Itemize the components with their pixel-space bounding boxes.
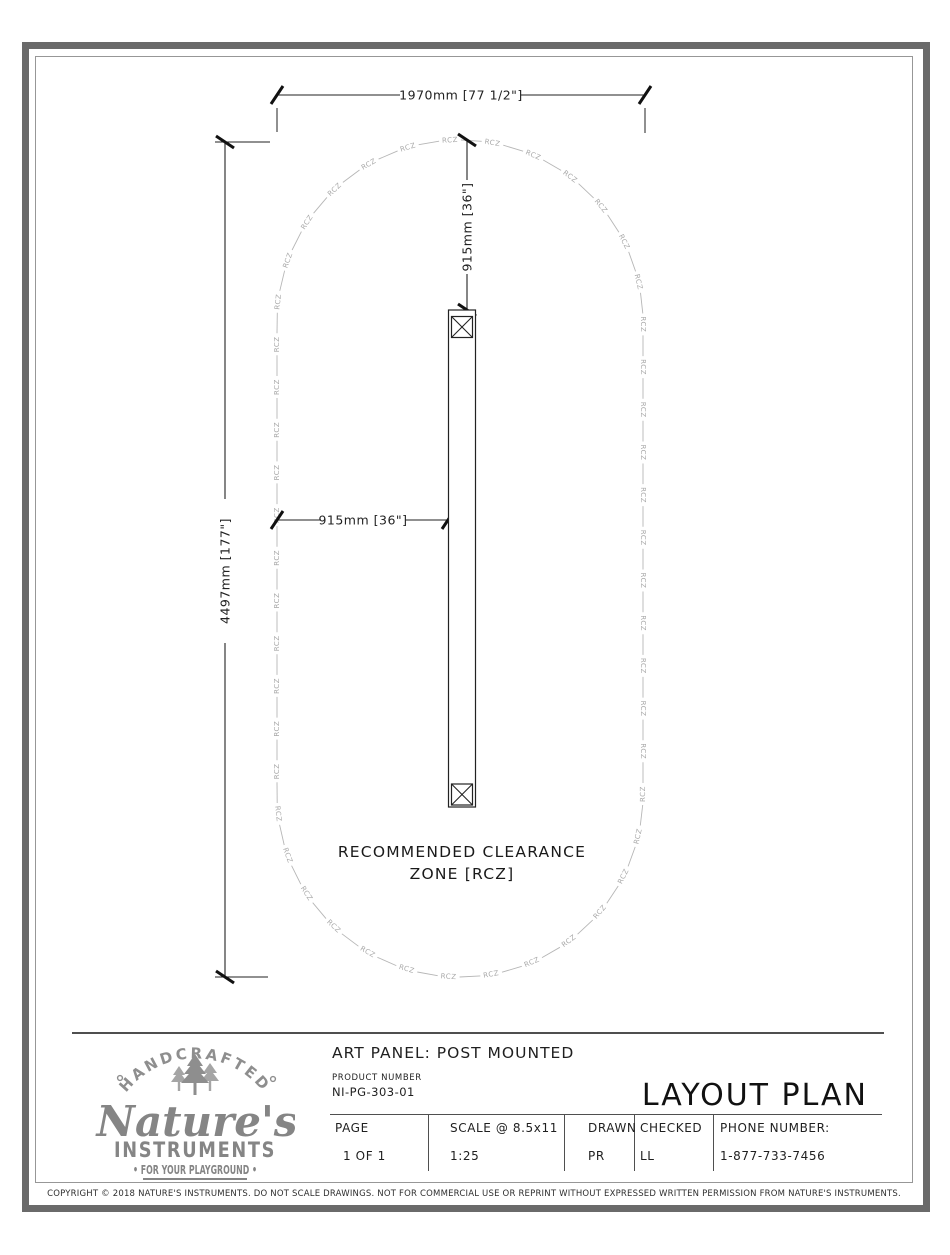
rcz-path-label: RCZ	[592, 903, 608, 920]
rcz-path-label: RCZ	[560, 933, 578, 949]
rcz-dash-segment	[292, 866, 301, 885]
rcz-dash-segment	[579, 184, 594, 198]
natures-instruments-logo: HANDCRAFTED Nature's INSTRUMENTS • FOR Y…	[95, 1040, 295, 1188]
table-value-checked: LL	[640, 1149, 655, 1163]
dimension-overall-height: 4497mm [177"]	[215, 136, 270, 983]
rcz-path-label: RCZ	[639, 743, 647, 759]
rcz-dash-segment	[379, 151, 398, 159]
rcz-path-label: RCZ	[281, 251, 294, 269]
table-divider	[428, 1115, 429, 1171]
clearance-note: RECOMMENDED CLEARANCE ZONE [RCZ]	[338, 843, 586, 883]
rcz-dash-segment	[629, 252, 636, 272]
rcz-path-label: RCZ	[273, 593, 281, 609]
rcz-path-label: RCZ	[484, 138, 501, 149]
rcz-path-label: RCZ	[273, 293, 283, 310]
dimension-overall-width: 1970mm [77 1/2"]	[271, 86, 651, 133]
table-divider	[713, 1115, 714, 1171]
rcz-path-label: RCZ	[273, 806, 283, 823]
rcz-dash-segment	[419, 141, 439, 145]
rcz-dash-segment	[280, 271, 285, 291]
rcz-path-label: RCZ	[299, 885, 314, 903]
table-top-rule	[330, 1114, 882, 1115]
post-bottom	[452, 784, 473, 805]
dimension-clearance-top: 915mm [36"]	[458, 134, 476, 316]
table-value-scale: 1:25	[450, 1149, 479, 1163]
rcz-path-label: RCZ	[442, 136, 458, 145]
rcz-dash-segment	[641, 293, 643, 314]
table-header-phone: PHONE NUMBER:	[720, 1121, 830, 1135]
rcz-path-label: RCZ	[273, 763, 281, 779]
product-number: NI-PG-303-01	[332, 1085, 415, 1099]
dim-label-overall-height: 4497mm [177"]	[218, 518, 233, 624]
title-block-top-rule	[72, 1032, 884, 1034]
dimension-clearance-side: 915mm [36"]	[271, 511, 454, 529]
copyright-notice: COPYRIGHT © 2018 NATURE'S INSTRUMENTS. D…	[35, 1189, 913, 1199]
rcz-dash-segment	[313, 903, 326, 919]
rcz-dash-segment	[578, 920, 593, 934]
logo-brand-caps: INSTRUMENTS	[114, 1138, 276, 1163]
rcz-dash-segment	[640, 805, 642, 826]
rcz-dash-segment	[543, 160, 561, 170]
rcz-path-label: RCZ	[633, 273, 644, 290]
rcz-dash-segment	[377, 957, 396, 965]
dim-label-clearance-side: 915mm [36"]	[318, 513, 407, 528]
rcz-dash-segment	[502, 966, 522, 972]
rcz-path-label: RCZ	[273, 464, 281, 480]
rcz-dash-segment	[628, 847, 635, 867]
rcz-dash-segment	[342, 934, 359, 946]
rcz-path-label: RCZ	[632, 828, 643, 845]
clearance-note-line2: ZONE [RCZ]	[410, 865, 515, 883]
rcz-path-label: RCZ	[273, 336, 281, 352]
rcz-path-label: RCZ	[325, 918, 342, 935]
rcz-path-label: RCZ	[639, 701, 647, 717]
rcz-dash-segment	[417, 972, 437, 976]
table-header-drawn: DRAWN	[588, 1121, 637, 1135]
rcz-path-label: RCZ	[639, 445, 647, 461]
rcz-path-label: RCZ	[639, 573, 647, 589]
rcz-path-label: RCZ	[281, 847, 294, 865]
dim-label-clearance-top: 915mm [36"]	[460, 182, 475, 271]
table-value-phone: 1-877-733-7456	[720, 1149, 825, 1163]
rcz-path-label: RCZ	[359, 945, 377, 960]
drawing-title: ART PANEL: POST MOUNTED	[332, 1044, 574, 1062]
rcz-dash-segment	[292, 232, 301, 250]
rcz-dash-segment	[607, 886, 618, 903]
rcz-path-label: RCZ	[639, 359, 647, 375]
clearance-zone-diagram: RCZRCZRCZRCZRCZRCZRCZRCZRCZRCZRCZRCZRCZR…	[0, 0, 950, 1033]
rcz-path-label: RCZ	[639, 316, 647, 332]
rcz-path-label: RCZ	[639, 615, 647, 631]
rcz-dash-segment	[343, 170, 360, 182]
rcz-path-label: RCZ	[299, 213, 315, 231]
rcz-path-label: RCZ	[273, 422, 281, 438]
table-value-page: 1 OF 1	[343, 1149, 386, 1163]
rcz-path-label: RCZ	[273, 721, 281, 737]
rcz-dash-segment	[503, 145, 523, 151]
dim-label-overall-width: 1970mm [77 1/2"]	[399, 88, 523, 103]
rcz-path-label: RCZ	[639, 658, 647, 674]
rcz-path-label: RCZ	[273, 550, 281, 566]
rcz-path-label: RCZ	[639, 530, 647, 546]
rcz-path-label: RCZ	[639, 786, 647, 802]
table-value-drawn: PR	[588, 1149, 605, 1163]
art-panel-plan	[449, 310, 476, 807]
rcz-path-label: RCZ	[523, 955, 541, 969]
rcz-dash-segment	[608, 215, 619, 232]
rcz-dash-segment	[460, 976, 481, 977]
rcz-dash-segment	[542, 947, 560, 957]
rcz-path-label: RCZ	[398, 963, 416, 975]
rcz-path-label: RCZ	[483, 969, 500, 980]
rcz-path-label: RCZ	[326, 181, 343, 198]
clearance-note-line1: RECOMMENDED CLEARANCE	[338, 843, 586, 861]
rcz-path-label: RCZ	[273, 635, 281, 651]
logo-dot-right	[271, 1077, 276, 1082]
rcz-path-label: RCZ	[273, 379, 281, 395]
table-header-scale: SCALE @ 8.5x11	[450, 1121, 558, 1135]
plan-type: LAYOUT PLAN	[500, 1078, 868, 1113]
rcz-path-label: RCZ	[360, 157, 378, 172]
logo-tagline: • FOR YOUR PLAYGROUND •	[133, 1163, 257, 1177]
rcz-path-label: RCZ	[617, 233, 631, 251]
rcz-path-label: RCZ	[399, 141, 417, 153]
product-number-label: PRODUCT NUMBER	[332, 1073, 422, 1083]
rcz-path-label: RCZ	[440, 972, 456, 981]
rcz-dash-segment	[314, 197, 327, 213]
drawing-sheet: RCZRCZRCZRCZRCZRCZRCZRCZRCZRCZRCZRCZRCZR…	[0, 0, 950, 1255]
table-divider	[564, 1115, 565, 1171]
rcz-path-label: RCZ	[616, 867, 630, 885]
rcz-path-label: RCZ	[639, 487, 647, 503]
rcz-path-label: RCZ	[639, 402, 647, 418]
rcz-path-label: RCZ	[593, 197, 609, 214]
rcz-dash-segment	[280, 825, 285, 845]
table-header-page: PAGE	[335, 1121, 369, 1135]
table-header-checked: CHECKED	[640, 1121, 702, 1135]
rcz-path-label: RCZ	[273, 678, 281, 694]
post-top	[452, 317, 473, 338]
rcz-path-label: RCZ	[561, 169, 579, 185]
rcz-path-label: RCZ	[524, 148, 542, 162]
